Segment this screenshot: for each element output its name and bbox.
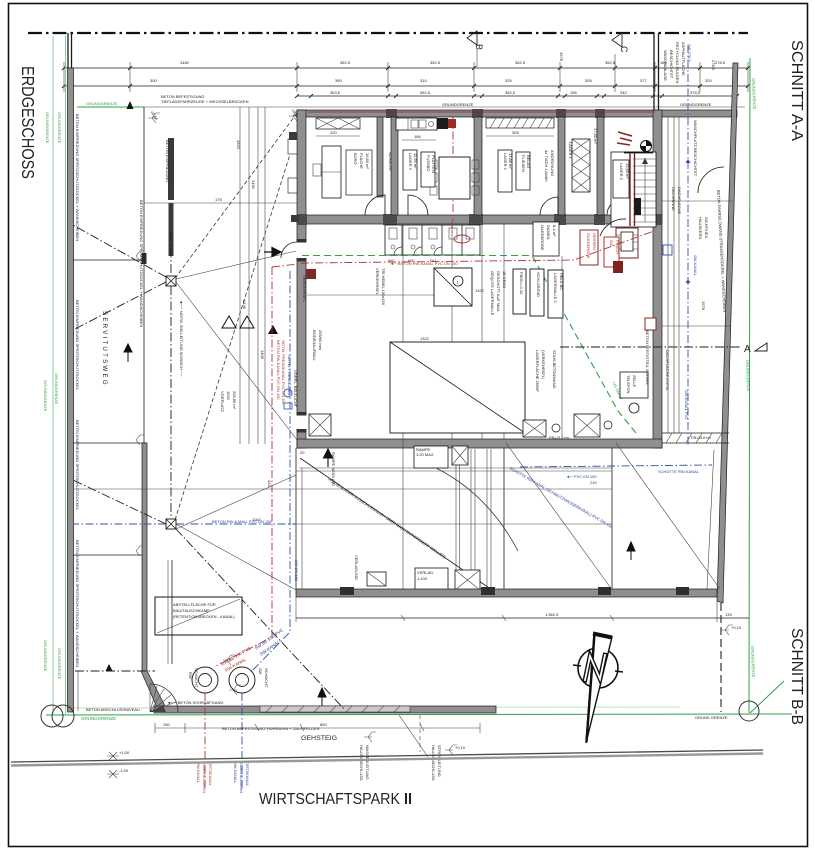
svg-text:BETON EINFRIEDUNG: BETON EINFRIEDUNG [165,140,170,182]
svg-text:175: 175 [215,197,222,202]
svg-text:278,5: 278,5 [711,60,716,71]
svg-text:ANSCHLUSS AN: ANSCHLUSS AN [239,762,244,793]
svg-text:TIEFLADEFAHRZEUGE + WECHSELBRÜ: TIEFLADEFAHRZEUGE + WECHSELBRÜCKEN [161,99,249,104]
svg-text:BETON BEFESTIGUNG FAHRBAHN: BETON BEFESTIGUNG FAHRBAHN + ZAUNFELDER [222,726,320,731]
svg-text:LAGER 2: LAGER 2 [503,153,508,171]
svg-text:20: 20 [300,450,305,455]
svg-text:B: B [474,44,484,50]
svg-text:SCHNITT B-B: SCHNITT B-B [788,628,805,725]
svg-text:ASPHALTFLÄCHE: ASPHALTFLÄCHE [681,42,686,76]
svg-text:+0,10: +0,10 [731,625,742,630]
svg-text:+1,00: +1,00 [119,750,130,755]
svg-text:BETON ANSCHLUSSNIVEAU: BETON ANSCHLUSSNIVEAU [86,707,140,712]
svg-text:1460: 1460 [251,180,256,190]
svg-text:1163: 1163 [252,517,261,522]
svg-text:320: 320 [705,78,712,83]
svg-text:C: C [619,46,629,53]
svg-text:SERVITUTSWEG: SERVITUTSWEG [101,311,108,387]
svg-text:305: 305 [585,78,592,83]
svg-text:SCHACHT: SCHACHT [388,152,393,172]
svg-text:SCHACHT: SCHACHT [264,668,269,688]
svg-text:1322: 1322 [420,336,430,341]
svg-text:155: 155 [570,90,577,95]
svg-text:SCHACHT: SCHACHT [194,668,199,688]
svg-text:GRUNDGRENZE: GRUNDGRENZE [57,112,62,144]
svg-text:LAGER 3: LAGER 3 [408,153,413,171]
svg-text:GARDEROBE: GARDEROBE [540,225,545,251]
svg-text:ORTSKANAL: ORTSKANAL [208,762,213,787]
svg-text:13,80 m²: 13,80 m² [508,153,513,169]
svg-text:BETON EINFRIEDUNG SPRITZSCHU: BETON EINFRIEDUNG SPRITZSCHUTZSOCKEL [75,300,80,391]
svg-text:BETON EINFRIEDUNG SPRITZSCHU: BETON EINFRIEDUNG SPRITZSCHUTZSOCKEL + W… [75,540,80,667]
svg-text:+0,10: +0,10 [455,745,466,750]
svg-text:STROMLEITUNG: STROMLEITUNG [437,745,442,777]
svg-text:FUSSBO: FUSSBO [426,155,431,171]
svg-text:SW-KANAL: SW-KANAL [233,762,238,784]
svg-text:◄─ BETON RW-KANAL PVC DN 15: ◄─ BETON RW-KANAL PVC DN 150 [390,261,458,266]
svg-text:RAMPE NEIGUNG: RAMPE NEIGUNG [331,452,336,486]
svg-text:378,5: 378,5 [690,90,701,95]
svg-text:255,85 m²: 255,85 m² [232,391,237,410]
svg-text:LAGERFLÄCHE 295M²: LAGERFLÄCHE 295M² [535,350,540,392]
svg-text:VERLADUNG: VERLADUNG [354,555,359,580]
svg-text:362,5: 362,5 [605,60,616,65]
svg-text:SCHÜTTE RW-KANAL: SCHÜTTE RW-KANAL [658,469,700,474]
svg-text:1408: 1408 [260,350,265,360]
svg-text:HAUSANSCHLUSS: HAUSANSCHLUSS [431,745,436,781]
svg-text:1460: 1460 [180,60,190,65]
svg-text:A: A [744,344,751,355]
svg-text:HBLS BC: HBLS BC [559,273,564,290]
svg-text:120: 120 [330,130,337,135]
svg-text:FBOK=-0,10: FBOK=-0,10 [519,272,524,295]
svg-text:BETON FERTIGTEIL SOCKEL: BETON FERTIGTEIL SOCKEL [645,330,650,386]
svg-text:390: 390 [335,78,342,83]
svg-text:LAGER 1: LAGER 1 [568,142,573,160]
svg-text:362,5: 362,5 [340,60,351,65]
svg-text:SW: SW [258,668,263,675]
svg-text:WD: WD [609,240,614,247]
svg-text:VERKEHRSFL: VERKEHRSFL [375,268,380,295]
svg-text:GRUNDGRENZE: GRUNDGRENZE [86,101,118,106]
svg-text:305: 305 [512,130,519,135]
svg-text:310: 310 [420,78,427,83]
svg-text:WIRTSCHAFTSPARK II: WIRTSCHAFTSPARK II [259,791,412,808]
svg-text:1578: 1578 [559,52,564,62]
svg-text:13,60 m²: 13,60 m² [625,163,630,179]
svg-text:850: 850 [320,722,327,727]
svg-text:255/60 mm: 255/60 mm [318,330,323,351]
svg-text:BÜRO: BÜRO [353,153,358,165]
svg-text:363,5: 363,5 [330,90,341,95]
svg-text:GRUNDGRENZE: GRUNDGRENZE [45,112,50,144]
svg-text:150: 150 [163,722,170,727]
svg-text:RW: RW [188,672,193,679]
svg-text:1436: 1436 [242,300,247,310]
svg-text:GRUNDGRENZE: GRUNDGRENZE [43,380,48,412]
svg-text:GRUNDGRENZE: GRUNDGRENZE [54,373,59,405]
svg-text:BODENAUFBAU: BODENAUFBAU [312,330,317,361]
svg-text:1533: 1533 [236,140,241,150]
svg-text:LAGER 2: LAGER 2 [619,163,624,181]
svg-text:TELEFON: TELEFON [626,375,631,394]
svg-text:434: 434 [267,480,272,487]
svg-text:362,5: 362,5 [515,60,526,65]
svg-text:BETON RW-KANAL PVC DN 150: BETON RW-KANAL PVC DN 150 [276,340,281,400]
svg-text:17,60 m²: 17,60 m² [593,128,598,144]
svg-text:ANSCHLUSS AN: ANSCHLUSS AN [202,762,207,793]
svg-text:8,4 m²: 8,4 m² [552,225,557,237]
svg-text:1:100: 1:100 [417,576,428,581]
svg-text:BETON EINFRIEDUNG SPRITZSCHU: BETON EINFRIEDUNG SPRITZSCHUTZSOCKEL + W… [75,114,80,241]
svg-text:ABSTELLFLÄCHE FÜR: ABSTELLFLÄCHE FÜR [173,602,216,607]
svg-text:1322: 1322 [475,288,485,293]
svg-text:133: 133 [725,612,732,617]
svg-text:SW-KANAL PVC: SW-KANAL PVC [684,390,689,420]
svg-text:15 GRAD: 15 GRAD [502,271,507,288]
svg-text:PLATTEN: PLATTEN [431,155,436,173]
svg-text:1533: 1533 [226,391,231,401]
svg-text:300: 300 [150,78,157,83]
svg-text:377: 377 [640,78,647,83]
svg-text:DACHRINNE: DACHRINNE [671,187,676,211]
svg-text:BETON RW-KANAL PVC DN 150: BETON RW-KANAL PVC DN 150 [212,519,272,524]
svg-text:1.562,5: 1.562,5 [545,612,559,617]
svg-text:GRUNDGRENZE: GRUNDGRENZE [680,102,712,107]
svg-text:FB=210+m: FB=210+m [691,435,711,440]
svg-text:HAUSKERN: HAUSKERN [698,217,703,239]
svg-text:VERKEHRSFL: VERKEHRSFL [302,275,307,302]
svg-text:(RETENTIONSBECKEN - KANAL): (RETENTIONSBECKEN - KANAL) [173,614,235,619]
svg-text:FLÄCHE: FLÄCHE [359,153,364,169]
svg-text:GRUNDGRENZE: GRUNDGRENZE [442,102,474,107]
svg-text:WASSERLEITUNG: WASSERLEITUNG [365,745,370,780]
svg-text:GESCHÜTT AUF MAX.: GESCHÜTT AUF MAX. [496,271,501,313]
svg-text:BETON EINFRIEDUNG SPRITZSCHU: BETON EINFRIEDUNG SPRITZSCHUTZSOCKEL [75,420,80,511]
svg-text:STAHLBETONWAND: STAHLBETONWAND [552,350,557,388]
svg-text:ORTSKANAL: ORTSKANAL [245,762,250,787]
svg-text:4x TISCH 120x80: 4x TISCH 120x80 [544,150,549,182]
svg-text:GRUNDGRENZE: GRUNDGRENZE [57,648,62,680]
svg-text:1:20 MAX: 1:20 MAX [416,452,434,457]
svg-text:FB=210+m: FB=210+m [549,435,569,440]
svg-text:◄─ PVC EN 150: ◄─ PVC EN 150 [566,474,597,479]
svg-text:LAGERHALLE 2: LAGERHALLE 2 [553,273,558,303]
svg-text:362,5: 362,5 [505,90,516,95]
svg-text:325: 325 [505,78,512,83]
svg-text:SICHTKIES: SICHTKIES [704,217,709,238]
svg-text:◄── BETON SCHRABFGANG: ◄── BETON SCHRABFGANG [167,700,223,705]
svg-text:◄── NOTW. ZIELLEITUNG WÜNSCH ─: ◄── NOTW. ZIELLEITUNG WÜNSCH ── [179,300,184,377]
svg-text:RW-KANAL: RW-KANAL [196,762,201,784]
svg-text:BAU/TAUSCHKAMP: BAU/TAUSCHKAMP [173,608,210,613]
svg-text:GEQUTE LAGERHALLE: GEQUTE LAGERHALLE [490,271,495,316]
svg-text:GRUNDGRENZE: GRUNDGRENZE [81,716,116,721]
svg-text:1578: 1578 [701,301,706,311]
svg-text:SW-KANAL: SW-KANAL [693,255,698,277]
svg-text:GEHSTEIG: GEHSTEIG [301,736,337,742]
svg-text:FLIESEN: FLIESEN [521,155,526,172]
svg-text:HERREN: HERREN [592,233,597,250]
svg-text:VERLAD.: VERLAD. [417,570,434,575]
svg-text:240: 240 [620,90,627,95]
svg-text:16,85 m²: 16,85 m² [365,153,370,169]
svg-text:DACHFLÄCHE: DACHFLÄCHE [677,187,682,214]
svg-text:BELAG: BELAG [526,155,531,168]
svg-text:WASCHANLAGE: WASCHANLAGE [663,50,668,81]
svg-text:186: 186 [414,134,421,139]
svg-text:GRUNDGRENZE: GRUNDGRENZE [43,640,48,672]
svg-text:WASCHPLATZ BESCHICHTET: WASCHPLATZ BESCHICHTET [693,120,698,177]
svg-text:GRUND GRENZE: GRUND GRENZE [695,715,728,720]
svg-text:DAMEN: DAMEN [546,225,551,240]
svg-text:(VERKEHRSFL): (VERKEHRSFL) [541,350,546,380]
svg-text:DACHFLÄCHE ENTW.: DACHFLÄCHE ENTW. [665,350,670,391]
svg-text:ANORDNUNG: ANORDNUNG [550,150,555,176]
svg-text:SCHNITT A-A: SCHNITT A-A [788,40,805,142]
svg-text:HAUSANSCHLUSS: HAUSANSCHLUSS [359,745,364,781]
svg-text:ERDGESCHOSS: ERDGESCHOSS [18,66,38,179]
svg-text:11,95 m²: 11,95 m² [413,153,418,169]
svg-text:BESCHICHTET: BESCHICHTET [669,50,674,79]
svg-text:SCHLÜREND: SCHLÜREND [536,272,541,297]
svg-text:362,5: 362,5 [420,90,431,95]
svg-text:PUSCH: PUSCH [615,240,620,254]
svg-text:SW DN 150: SW DN 150 [294,560,299,582]
svg-text:RECYCLING MULDEN: RECYCLING MULDEN [675,42,680,83]
svg-text:-1,00: -1,00 [119,768,129,773]
svg-text:362,5: 362,5 [430,60,441,65]
svg-text:VORPLATZ: VORPLATZ [220,391,225,412]
svg-text:TRI HEBEL 150x150: TRI HEBEL 150x150 [381,268,386,306]
svg-text:ZELLE: ZELLE [632,375,637,388]
svg-text:246: 246 [590,480,597,485]
